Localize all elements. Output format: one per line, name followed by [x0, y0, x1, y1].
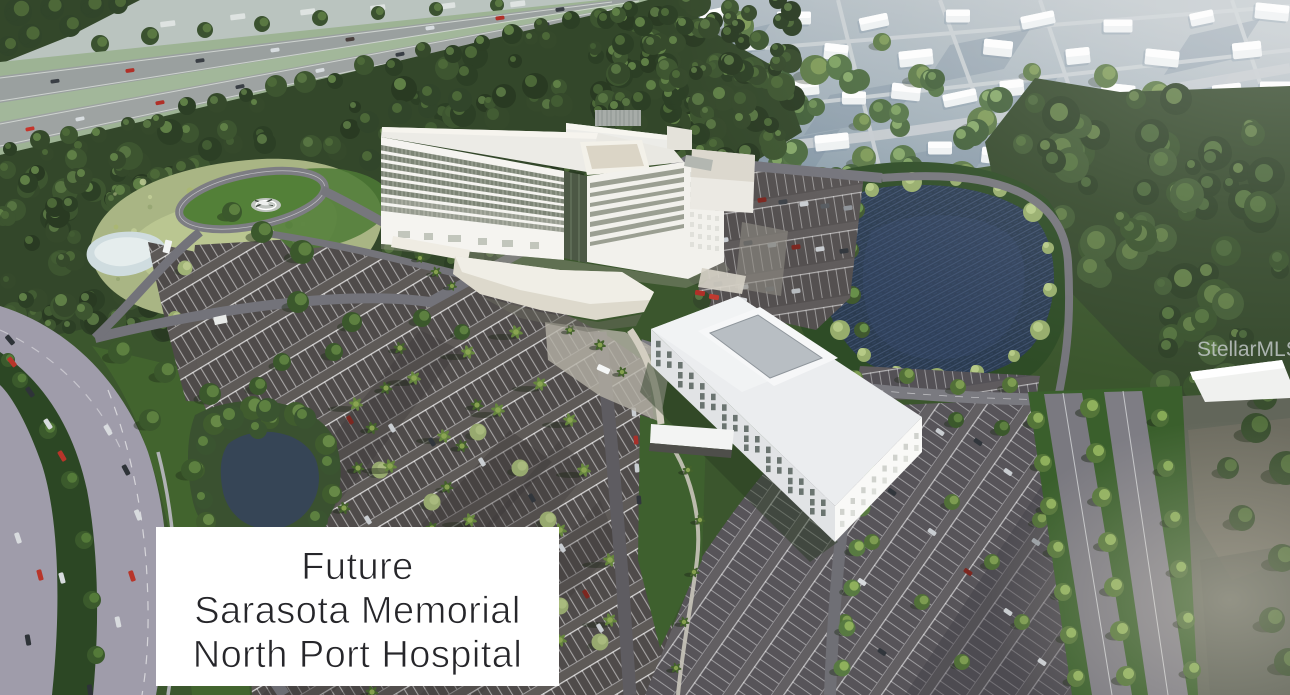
- svg-text:StellarMLS: StellarMLS: [1197, 338, 1290, 361]
